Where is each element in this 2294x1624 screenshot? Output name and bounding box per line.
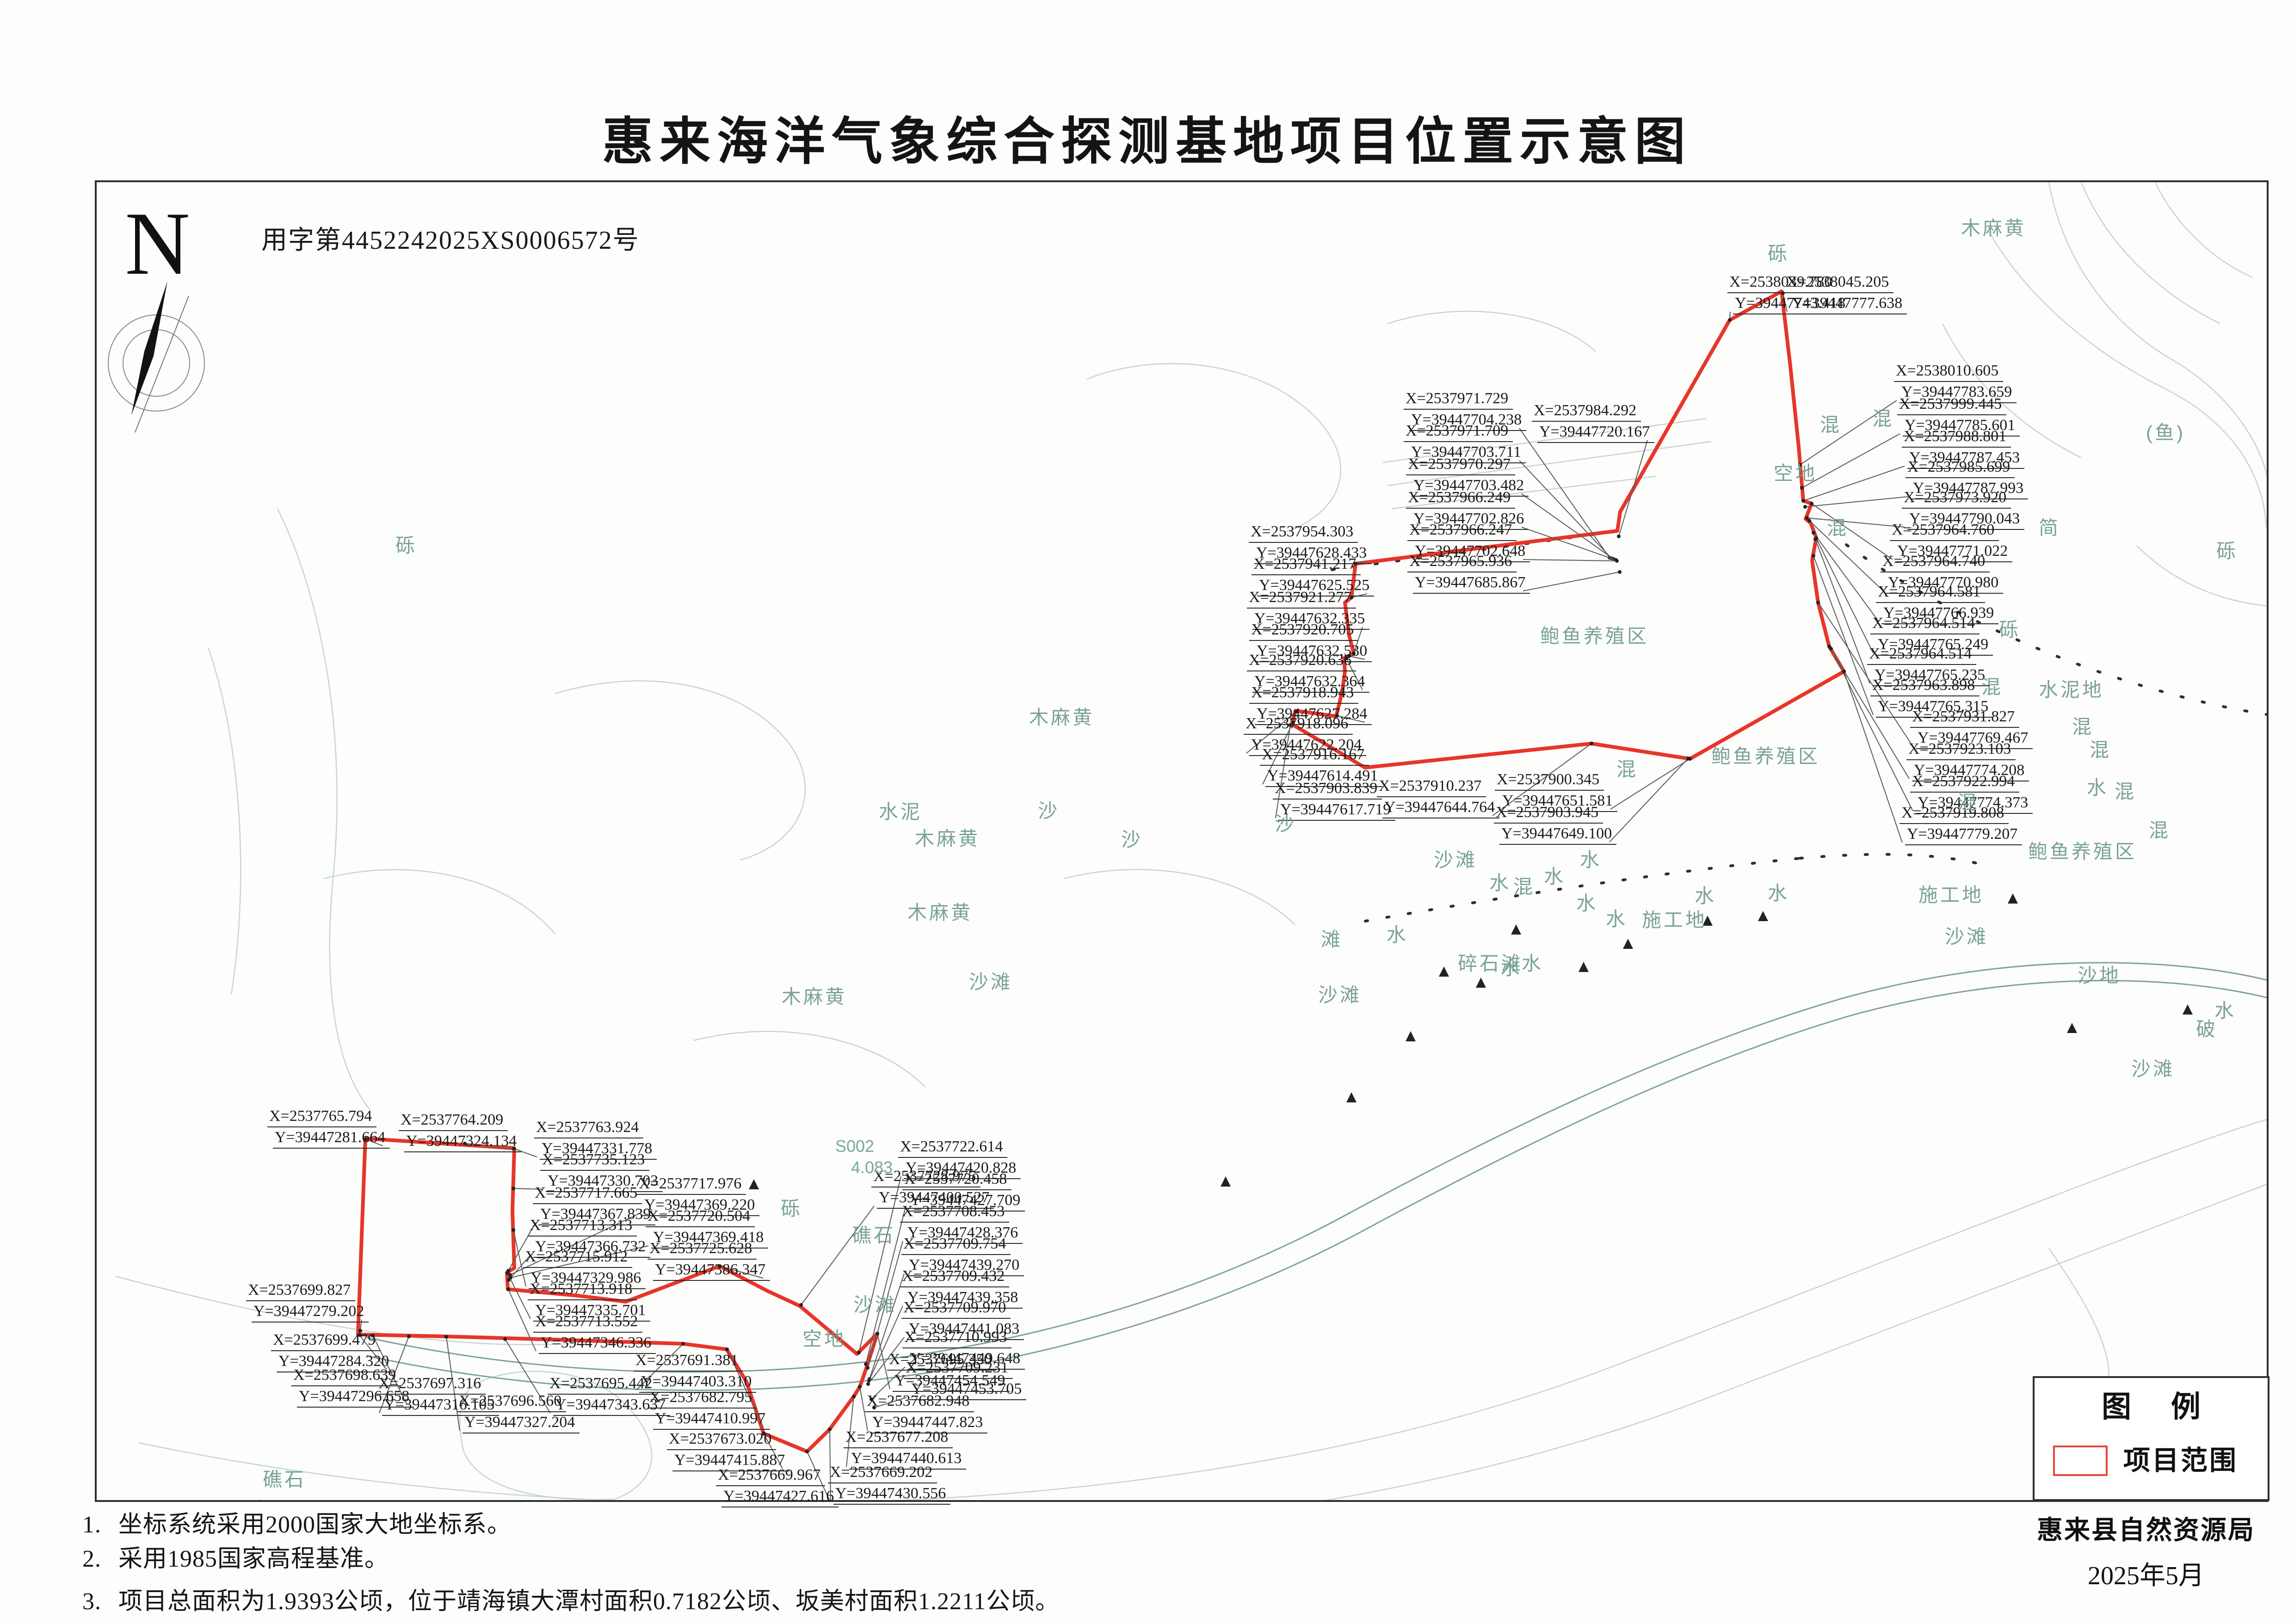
note-text: 项目总面积为1.9393公顷，位于靖海镇大潭村面积0.7182公顷、坂美村面积1… bbox=[118, 1590, 1060, 1614]
credits: 惠来县自然资源局 2025年5月 bbox=[1998, 1518, 2294, 1589]
project-extent-swatch bbox=[2053, 1446, 2108, 1476]
legend-title: 图 例 bbox=[2035, 1392, 2268, 1421]
map-notes: 1. 坐标系统采用2000国家大地坐标系。 2. 采用1985国家高程基准。 3… bbox=[82, 1513, 1060, 1624]
issuing-agency: 惠来县自然资源局 bbox=[1998, 1518, 2294, 1544]
legend-item-project-extent: 项目范围 bbox=[2053, 1446, 2238, 1476]
page-title: 惠来海洋气象综合探测基地项目位置示意图 bbox=[602, 114, 1692, 170]
north-arrow-label: N bbox=[125, 199, 190, 289]
legend-item-label: 项目范围 bbox=[2123, 1447, 2238, 1474]
issue-date: 2025年5月 bbox=[1998, 1563, 2294, 1589]
map-sheet: { "title": "惠来海洋气象综合探测基地项目位置示意图", "permi… bbox=[0, 0, 2294, 1622]
permit-number: 用字第4452242025XS0006572号 bbox=[261, 228, 640, 253]
map-frame bbox=[95, 180, 2269, 1502]
note-row: 3. 项目总面积为1.9393公顷，位于靖海镇大潭村面积0.7182公顷、坂美村… bbox=[82, 1590, 1060, 1614]
note-row: 2. 采用1985国家高程基准。 bbox=[82, 1547, 1060, 1571]
note-text: 坐标系统采用2000国家大地坐标系。 bbox=[118, 1513, 512, 1537]
legend-box: 图 例 项目范围 bbox=[2033, 1376, 2269, 1501]
note-row: 1. 坐标系统采用2000国家大地坐标系。 bbox=[82, 1513, 1060, 1537]
note-text: 采用1985国家高程基准。 bbox=[118, 1547, 389, 1571]
